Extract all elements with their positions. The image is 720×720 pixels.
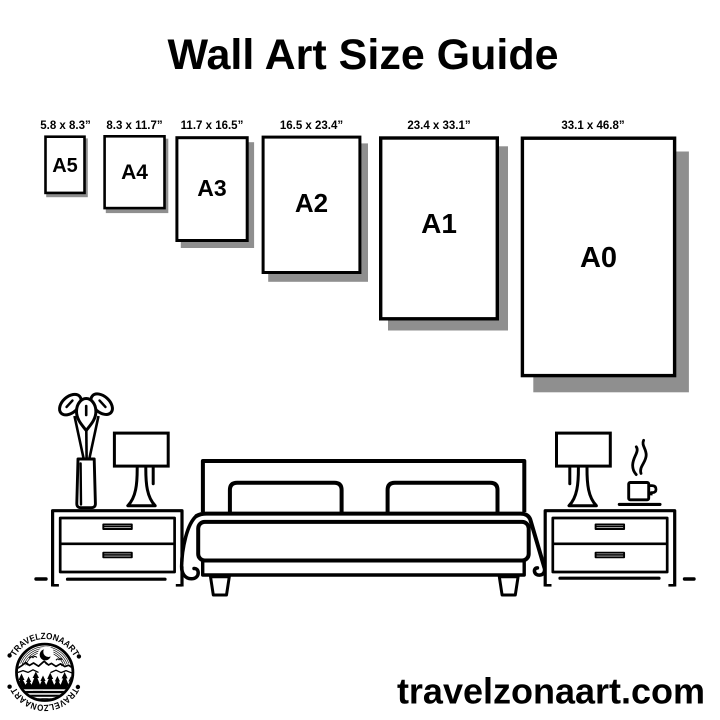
svg-text:5.8 x 8.3”: 5.8 x 8.3” [40, 120, 91, 132]
svg-text:11.7 x 16.5”: 11.7 x 16.5” [181, 120, 244, 132]
svg-text:travelzonaart.com: travelzonaart.com [397, 671, 705, 712]
svg-text:Wall Art Size Guide: Wall Art Size Guide [167, 31, 558, 79]
svg-text:23.4 x 33.1”: 23.4 x 33.1” [407, 120, 470, 132]
svg-text:8.3 x 11.7”: 8.3 x 11.7” [106, 120, 162, 132]
svg-text:A4: A4 [121, 161, 148, 184]
svg-text:33.1 x 46.8”: 33.1 x 46.8” [561, 120, 624, 132]
svg-text:A5: A5 [52, 155, 78, 177]
svg-text:16.5 x 23.4”: 16.5 x 23.4” [280, 120, 343, 132]
svg-text:A2: A2 [295, 188, 328, 218]
svg-text:A0: A0 [580, 242, 617, 274]
svg-text:A1: A1 [421, 208, 457, 239]
svg-text:A3: A3 [197, 175, 226, 201]
